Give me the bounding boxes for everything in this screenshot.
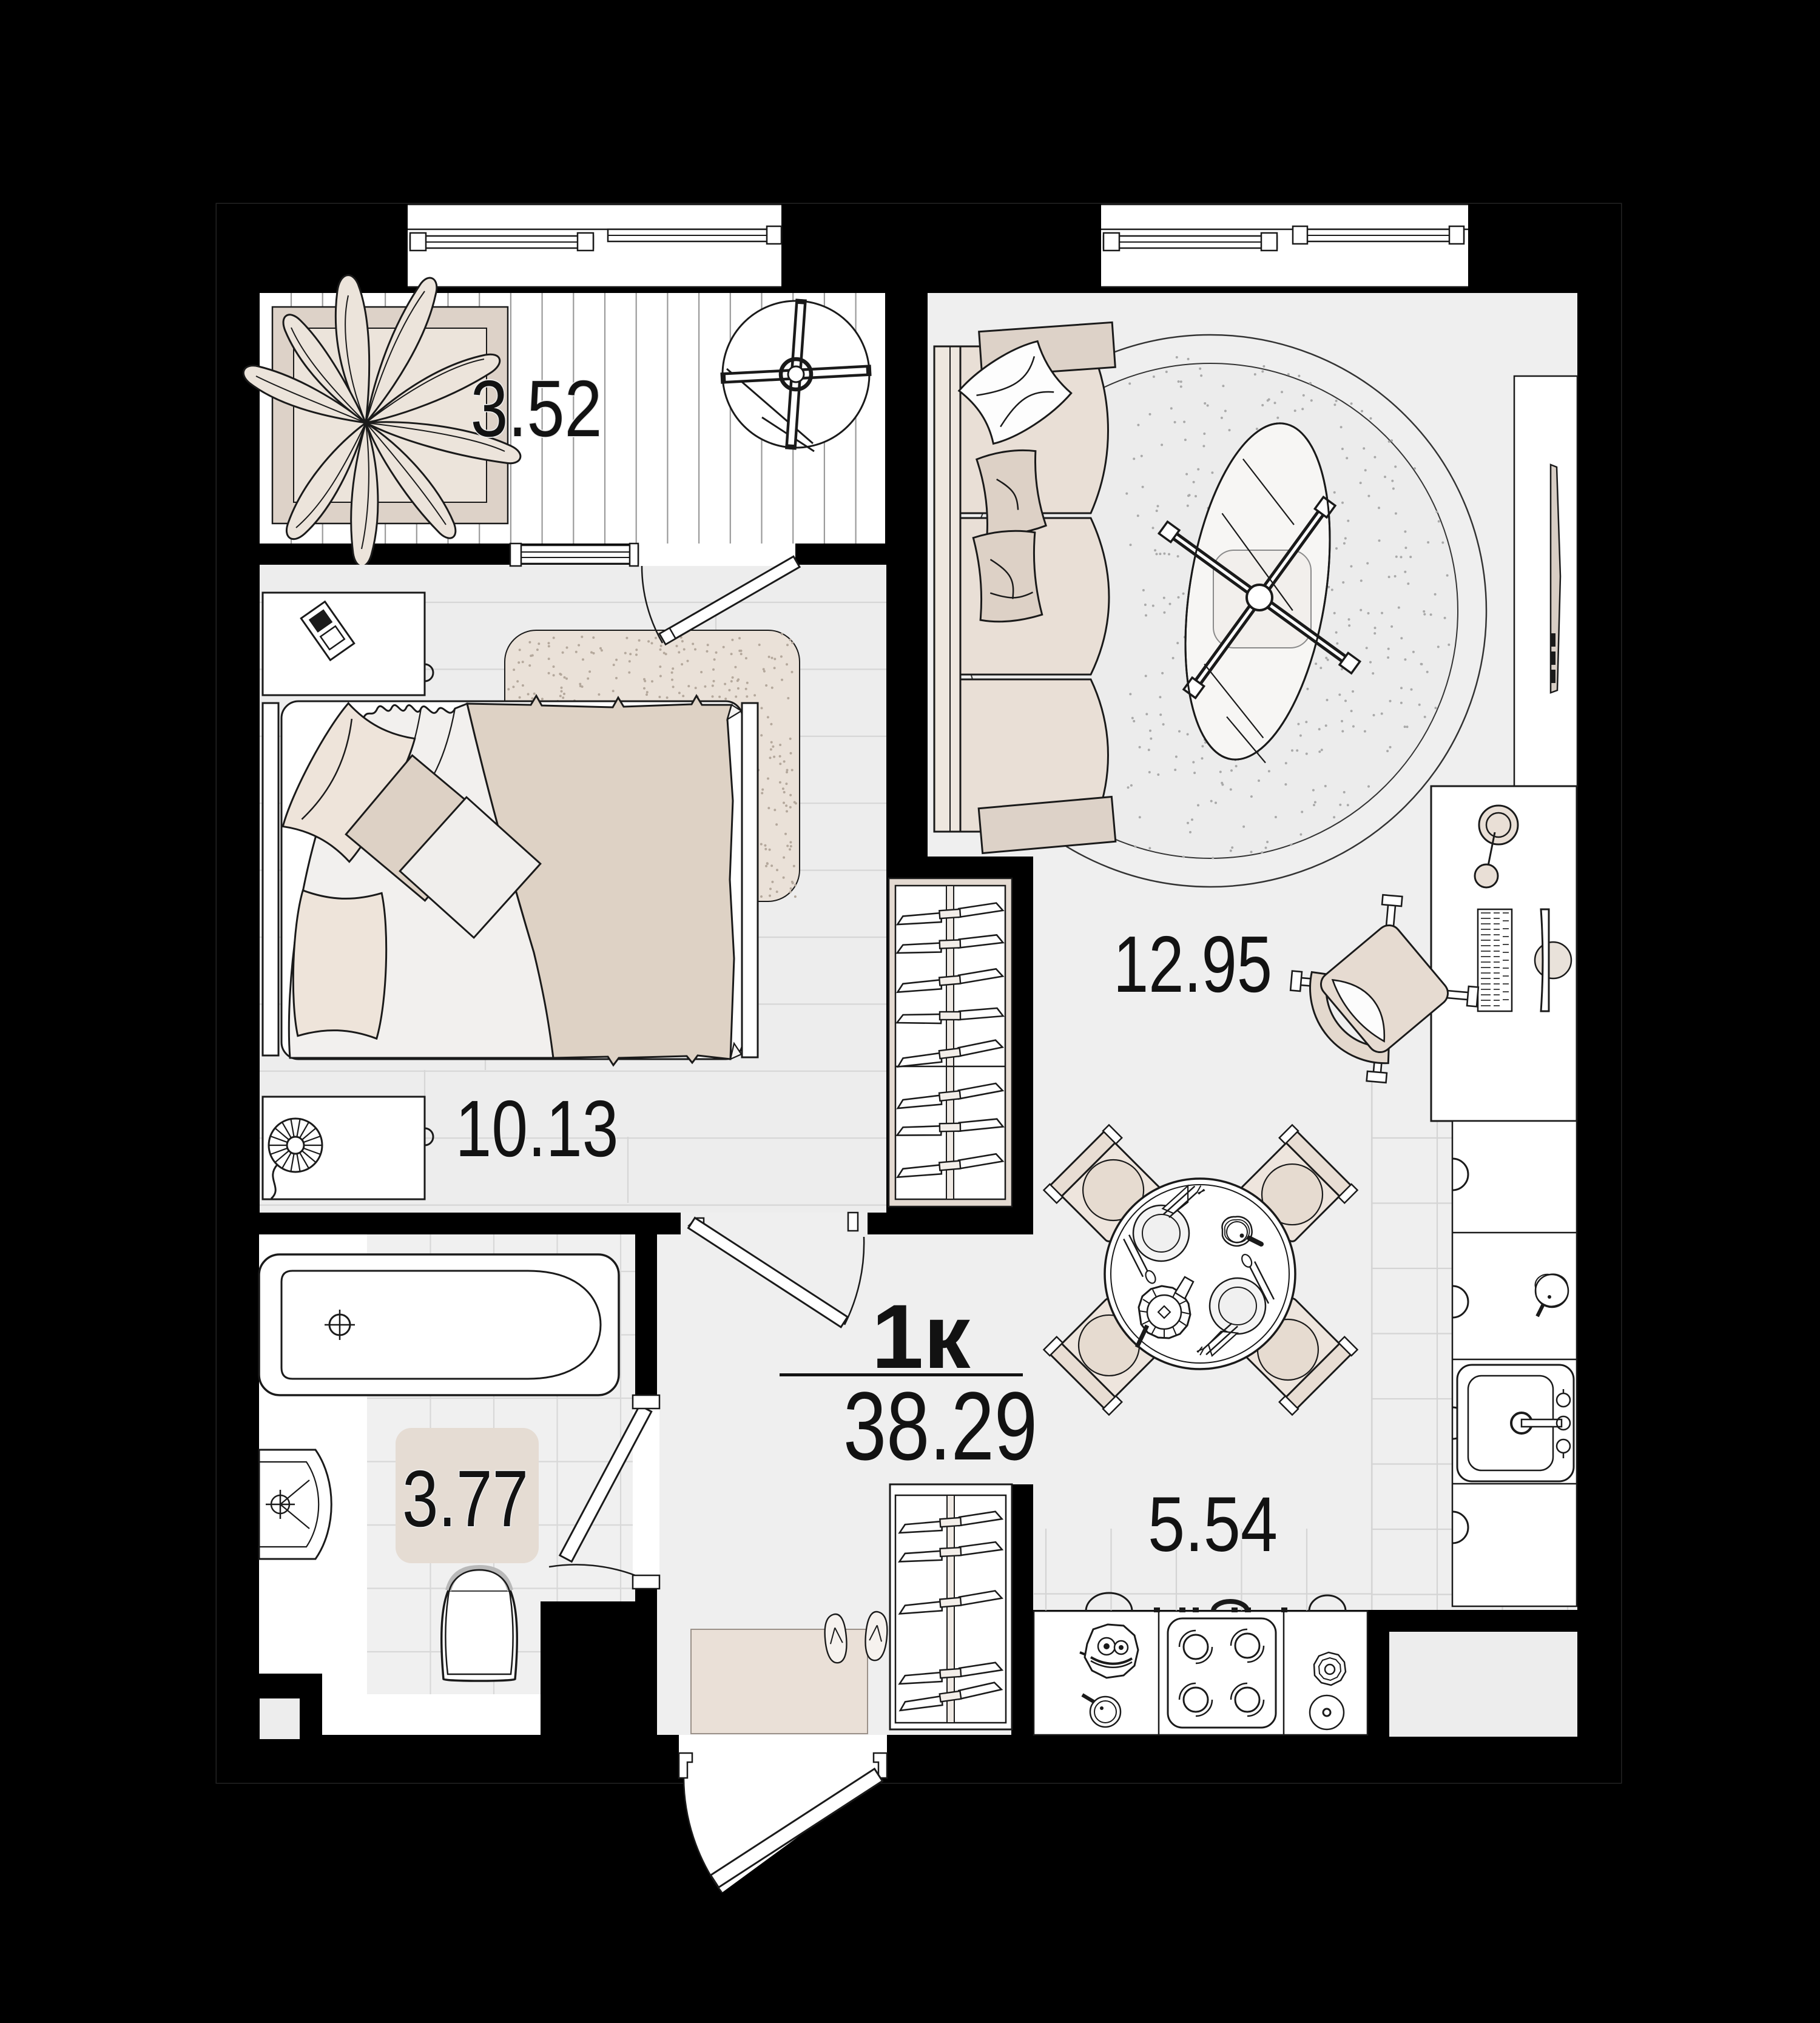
svg-text:3.52: 3.52 [471,364,602,453]
svg-text:12.95: 12.95 [1113,920,1272,1009]
svg-text:5.54: 5.54 [1148,1481,1278,1568]
svg-text:10.13: 10.13 [456,1084,619,1173]
svg-text:3.77: 3.77 [402,1454,528,1543]
svg-text:38.29: 38.29 [843,1372,1037,1480]
